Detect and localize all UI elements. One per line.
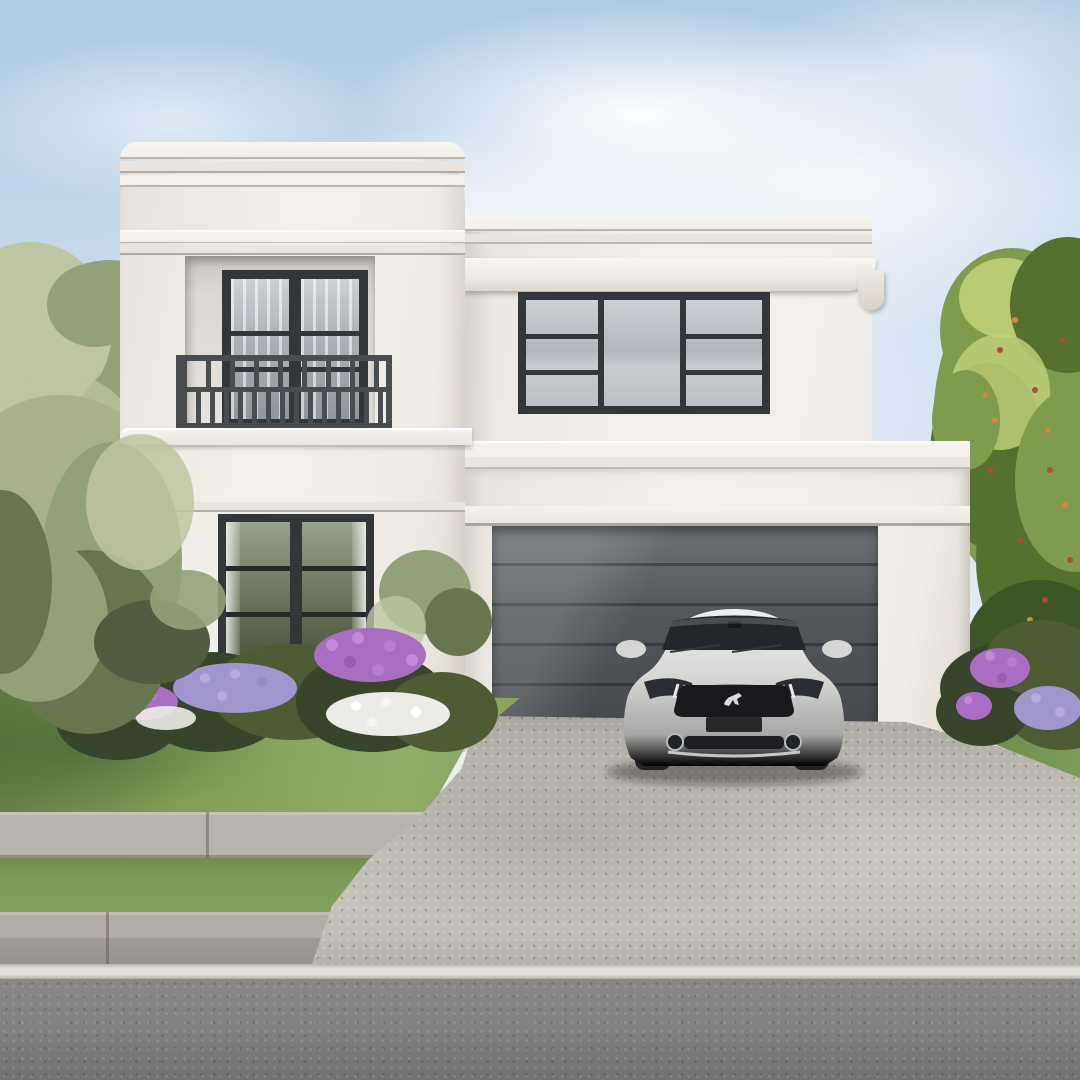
scene	[0, 0, 1080, 1080]
foreground-branches	[0, 0, 1080, 1080]
olive-branches-front	[0, 434, 226, 734]
